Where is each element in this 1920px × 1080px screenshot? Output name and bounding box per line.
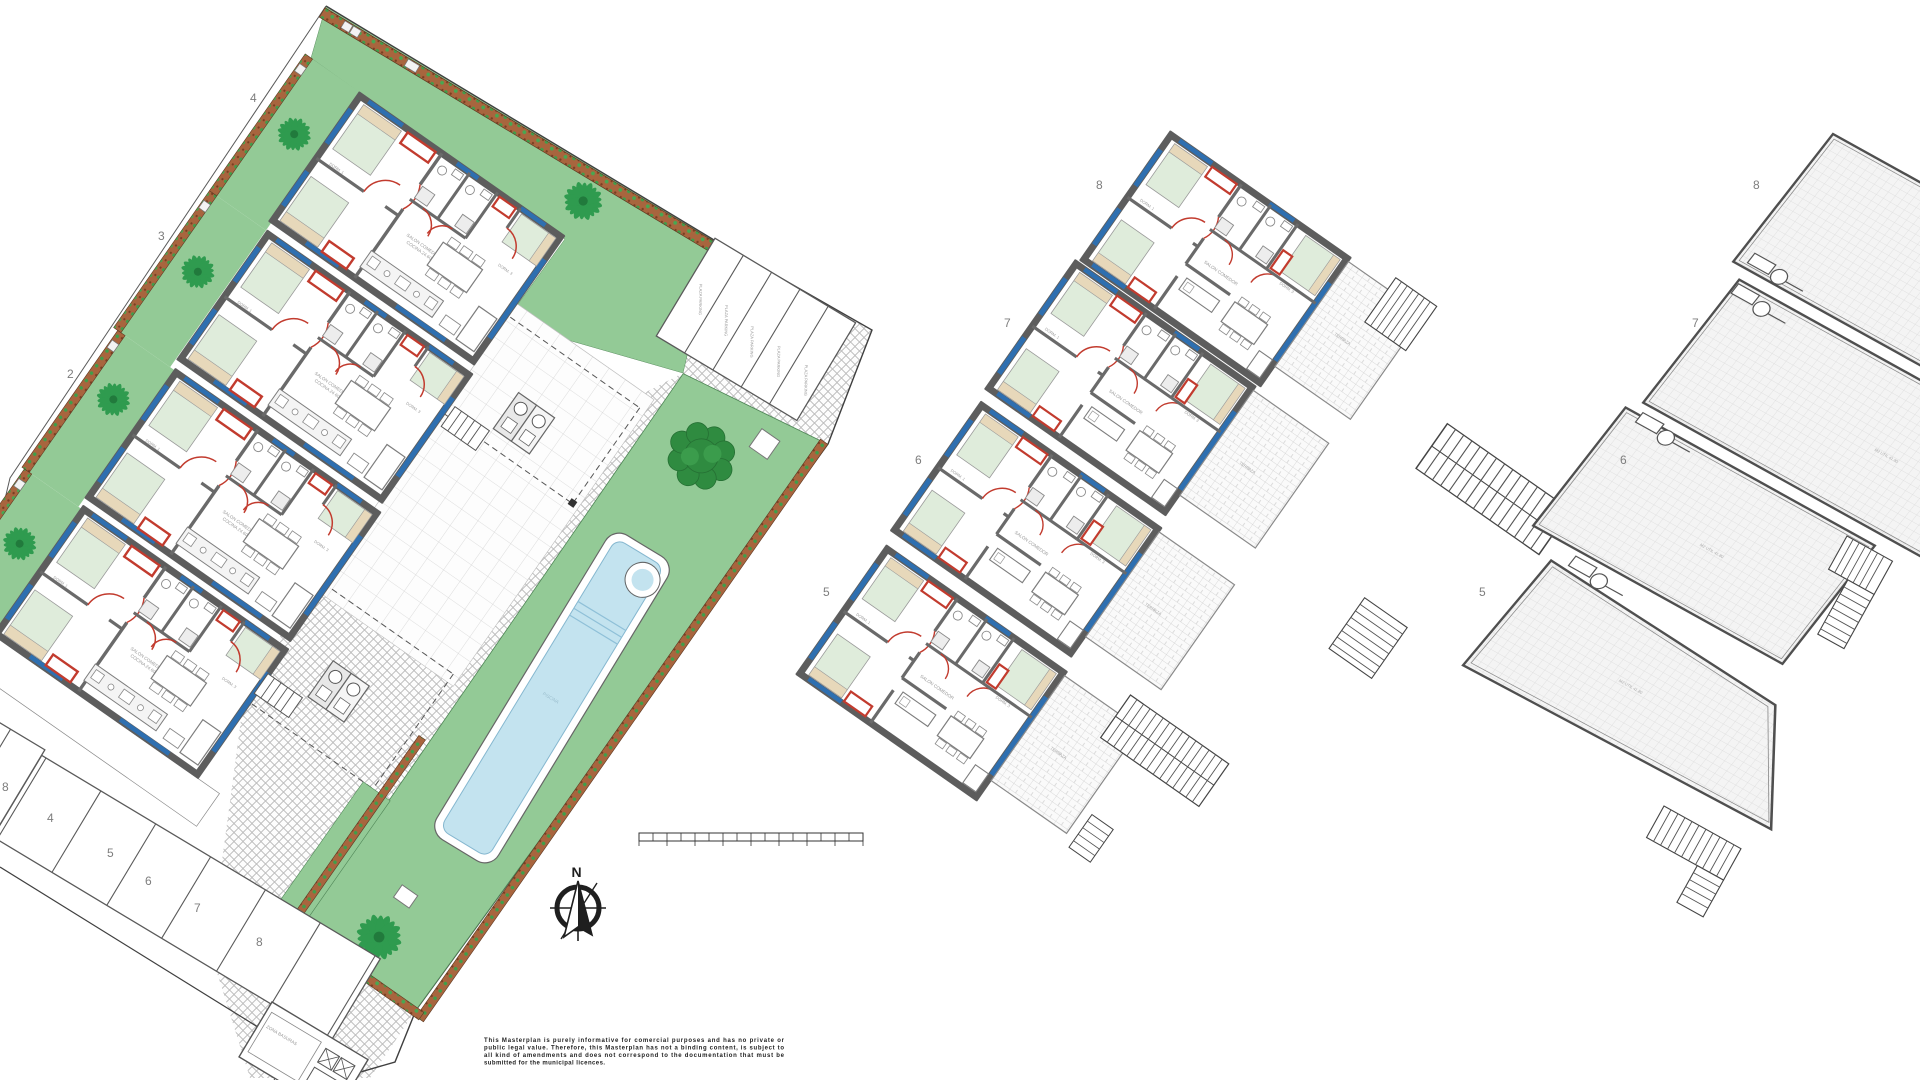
svg-text:all kind of amendments and doe: all kind of amendments and does not corr… (484, 1053, 785, 1059)
svg-text:5: 5 (107, 846, 114, 860)
svg-text:PLAZA PARKING: PLAZA PARKING (776, 346, 782, 377)
svg-text:5: 5 (823, 585, 830, 599)
svg-text:7: 7 (1004, 316, 1011, 330)
svg-text:8: 8 (256, 935, 263, 949)
svg-text:This Masterplan is purely info: This Masterplan is purely informative fo… (484, 1038, 785, 1044)
svg-text:PLAZA PARKING: PLAZA PARKING (803, 365, 809, 396)
svg-text:PLAZA PARKING: PLAZA PARKING (698, 284, 704, 315)
svg-text:8: 8 (1096, 178, 1103, 192)
svg-text:6: 6 (1620, 453, 1627, 467)
svg-text:6: 6 (915, 453, 922, 467)
svg-text:N: N (572, 864, 582, 880)
svg-text:PLAZA PARKING: PLAZA PARKING (749, 326, 755, 357)
svg-text:7: 7 (1692, 316, 1699, 330)
svg-text:6: 6 (145, 874, 152, 888)
svg-text:3: 3 (158, 229, 165, 243)
svg-text:2: 2 (67, 367, 74, 381)
svg-text:PLAZA PARKING: PLAZA PARKING (724, 305, 730, 336)
svg-text:8: 8 (2, 780, 9, 794)
svg-text:public legal value. Therefore,: public legal value. Therefore, this Mast… (484, 1046, 784, 1052)
svg-text:submitted for the municipal li: submitted for the municipal licences. (484, 1061, 605, 1067)
svg-text:5: 5 (1479, 585, 1486, 599)
svg-text:4: 4 (47, 811, 54, 825)
svg-text:7: 7 (194, 901, 201, 915)
svg-text:4: 4 (250, 91, 257, 105)
svg-text:8: 8 (1753, 178, 1760, 192)
